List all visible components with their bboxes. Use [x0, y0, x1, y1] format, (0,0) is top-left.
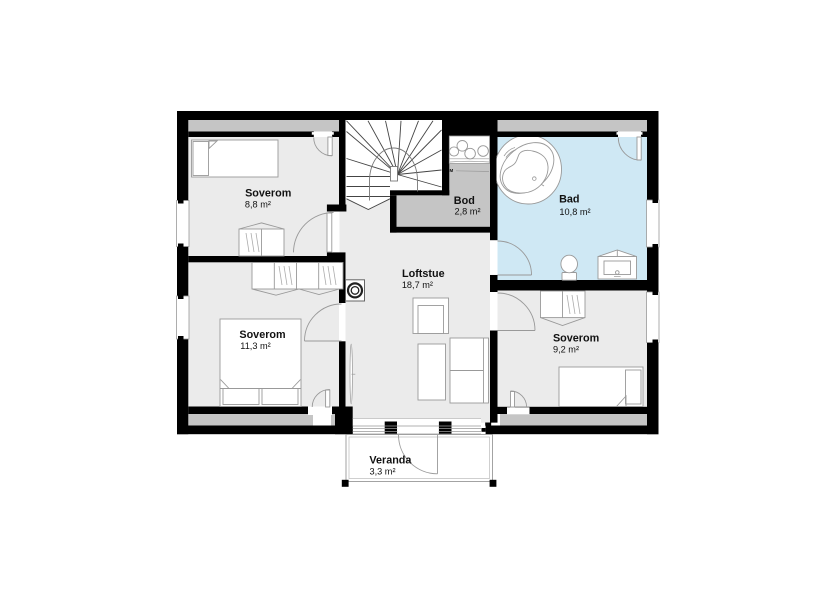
svg-text:Soverom: Soverom: [239, 329, 285, 341]
svg-text:18,7 m²: 18,7 m²: [402, 280, 433, 290]
svg-text:10,8 m²: 10,8 m²: [559, 207, 590, 217]
svg-text:Loftstue: Loftstue: [402, 268, 445, 280]
svg-text:11,3 m²: 11,3 m²: [240, 341, 270, 351]
svg-text:M: M: [450, 168, 454, 173]
svg-text:Soverom: Soverom: [553, 332, 599, 344]
svg-text:Soverom: Soverom: [245, 188, 291, 200]
svg-text:2,8 m²: 2,8 m²: [454, 206, 480, 216]
svg-text:Bad: Bad: [559, 194, 579, 206]
svg-text:8,8 m²: 8,8 m²: [245, 200, 271, 210]
svg-text:3,3 m²: 3,3 m²: [369, 467, 395, 477]
svg-text:Veranda: Veranda: [369, 454, 412, 466]
svg-text:9,2 m²: 9,2 m²: [553, 344, 579, 354]
svg-text:Bod: Bod: [454, 195, 475, 207]
